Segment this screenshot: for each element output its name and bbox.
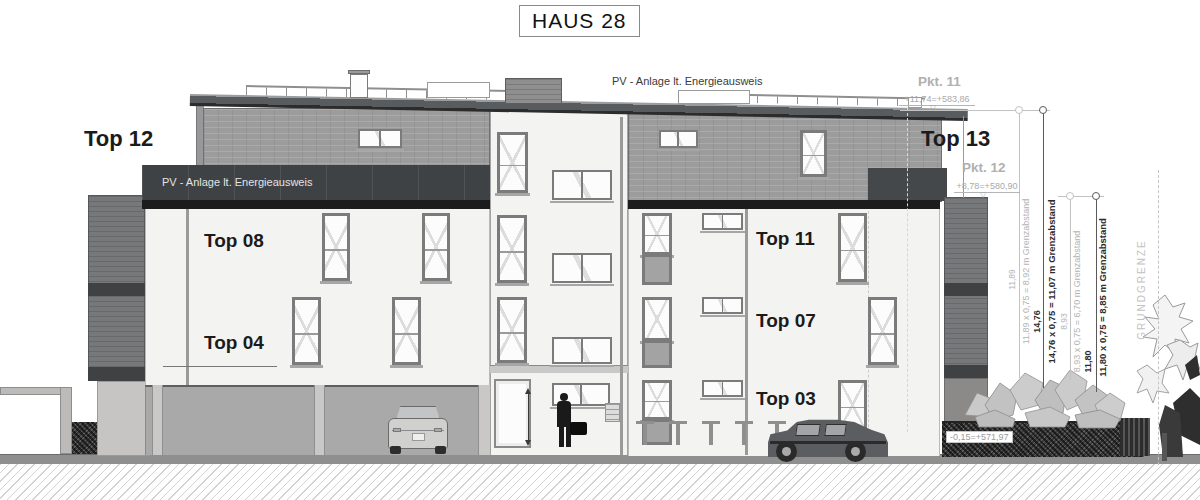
elevation-drawing-canvas: GRUNDGRENZE 11,89 11,89 x 0,75 = 8,92 m … [0, 0, 1200, 500]
pv-note-roof: PV - Anlage lt. Energieausweis [612, 75, 762, 87]
unit-label-top03: Top 03 [756, 388, 816, 410]
car-rear-plate [412, 433, 425, 441]
french-window-panel [642, 255, 672, 285]
bollard [636, 421, 654, 445]
left-side-wall-base [97, 381, 150, 456]
left-attic-brick-facade [203, 108, 490, 166]
dimension-line [1043, 110, 1044, 388]
rooftop-unit-outline [678, 90, 750, 104]
car-rear-taillight [434, 428, 442, 432]
reference-line [907, 108, 908, 432]
door-dimension-arrow-down [525, 440, 531, 446]
window-tall [497, 132, 528, 193]
person-body [557, 401, 571, 427]
unit-label-top12: Top 12 [84, 126, 153, 152]
chimney-white [350, 74, 368, 98]
downpipe [745, 209, 748, 455]
window-pair [702, 297, 743, 314]
survey-point-circle [1092, 192, 1100, 200]
bollard [669, 421, 687, 445]
window-pair [659, 130, 698, 148]
unit-label-top13: Top 13 [921, 126, 990, 152]
elevation-value: +8,78=+580,90 [954, 181, 1020, 193]
car-side-hubcap [851, 447, 860, 456]
french-window-panel [642, 341, 672, 368]
garage-column [314, 385, 325, 455]
car-rear-taillight [393, 428, 401, 432]
distance-length: 11,80 [1083, 342, 1094, 382]
left-fence-post [60, 387, 72, 454]
drawing-title: HAUS 28 [519, 5, 640, 37]
dimension-connector [900, 110, 1050, 111]
rooftop-unit-outline [427, 82, 490, 98]
french-window-glass [642, 213, 672, 255]
survey-point-name: Pkt. 12 [962, 160, 1006, 175]
person-leg [559, 427, 564, 447]
left-side-wall-band-lower [88, 367, 145, 381]
window-tall [838, 213, 867, 282]
window-tall [497, 297, 527, 363]
garage-column [152, 385, 163, 455]
survey-point-circle [1015, 106, 1023, 114]
pv-note-band: PV - Anlage lt. Energieausweis [162, 176, 312, 188]
window-tall [868, 297, 897, 365]
elevation-marker-triangle: ▽ [930, 103, 936, 112]
downpipe [620, 117, 623, 455]
distance-formula: 14,76 x 0,75 = 11,07 m Grenzabstand [1046, 197, 1057, 367]
elevation-value: +11,74=+583,86 [899, 94, 975, 106]
door-dimension-arrow-up [525, 388, 531, 394]
right-side-wall-band-upper [944, 283, 988, 296]
survey-point-circle [1066, 192, 1074, 200]
bollard [702, 421, 720, 445]
window-pair [702, 213, 743, 230]
distance-length: 8,93 [1059, 302, 1070, 342]
window-tall [392, 297, 421, 365]
entry-steps [605, 403, 620, 422]
boundary-label: GRUNDGRENZE [1136, 220, 1147, 360]
window-pair [358, 129, 402, 148]
survey-point-name: Pkt. 11 [918, 74, 961, 89]
window-pair [552, 253, 612, 283]
boundary-line [1158, 170, 1159, 465]
window-tall [322, 213, 350, 281]
car-side-window [824, 424, 847, 436]
elevation-marker-triangle: ▽ [980, 190, 986, 199]
window-tall [497, 215, 527, 283]
briefcase [570, 422, 587, 435]
door-dimension-line [528, 391, 529, 443]
window-pair [552, 337, 612, 364]
left-gabion-wall [72, 422, 98, 454]
left-slab-band [142, 200, 490, 209]
unit-label-top07: Top 07 [756, 310, 816, 332]
unit-label-top11: Top 11 [756, 228, 815, 250]
window-tall [422, 213, 450, 281]
distance-formula: 8,93 x 0,75 = 6,70 m Grenzabstand [1072, 222, 1083, 382]
french-window-glass [642, 380, 672, 420]
distance-formula: 11,89 x 0,75 = 8,92 m Grenzabstand [1021, 192, 1032, 352]
window-tall [292, 297, 321, 365]
chimney-brick [505, 78, 562, 104]
unit-label-top08: Top 08 [204, 230, 264, 252]
car-rear-wheel [435, 446, 446, 454]
car-rear-wheel [390, 446, 401, 454]
ground-hatch [0, 464, 1200, 500]
right-slab-band [628, 200, 940, 209]
bollard [735, 421, 753, 445]
french-window-glass [642, 297, 672, 341]
distance-length: 14,76 [1032, 302, 1043, 342]
car-side-hubcap [782, 447, 791, 456]
downpipe [186, 209, 189, 385]
window-pair [552, 170, 612, 200]
survey-point-circle [1039, 106, 1047, 114]
unit-label-underline [163, 366, 277, 367]
unit-label-top04: Top 04 [204, 332, 264, 354]
person-head [560, 393, 568, 401]
distance-formula: 11,80 x 0,75 = 8,85 m Grenzabstand [1097, 213, 1108, 383]
distance-length: 11,89 [1007, 260, 1018, 300]
window-pair [702, 380, 743, 397]
ground-elevation-value: -0,15=+571,97 [946, 431, 1013, 443]
window-tall [800, 130, 827, 177]
car-side-window [795, 424, 821, 436]
left-side-wall-band-upper [88, 283, 145, 296]
